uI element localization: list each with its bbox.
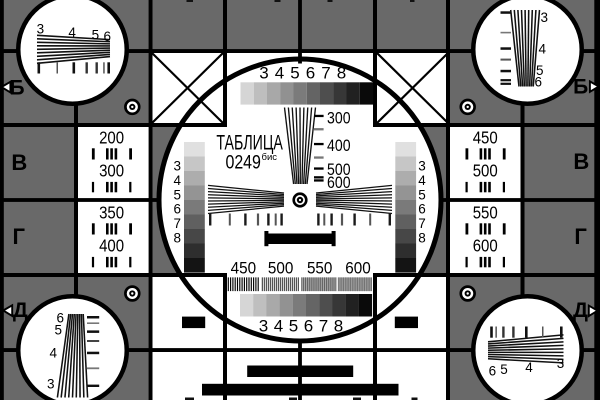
svg-text:450: 450 bbox=[473, 128, 498, 148]
svg-text:300: 300 bbox=[327, 109, 351, 127]
svg-text:4: 4 bbox=[173, 173, 181, 188]
svg-text:В: В bbox=[573, 149, 589, 174]
svg-text:3: 3 bbox=[37, 22, 45, 37]
svg-text:5: 5 bbox=[54, 323, 62, 338]
svg-text:7: 7 bbox=[321, 64, 330, 83]
svg-text:4: 4 bbox=[50, 346, 58, 361]
svg-text:4: 4 bbox=[539, 42, 547, 57]
svg-text:3: 3 bbox=[173, 159, 181, 174]
svg-text:350: 350 bbox=[99, 203, 124, 223]
svg-text:7: 7 bbox=[319, 317, 328, 336]
svg-text:8: 8 bbox=[418, 231, 426, 246]
svg-text:Д: Д bbox=[13, 299, 28, 322]
svg-text:4: 4 bbox=[68, 25, 76, 40]
svg-text:500: 500 bbox=[473, 160, 498, 180]
svg-text:3: 3 bbox=[557, 356, 565, 371]
svg-text:Б: Б bbox=[573, 76, 588, 99]
svg-text:8: 8 bbox=[334, 317, 343, 336]
svg-text:300: 300 bbox=[99, 160, 124, 180]
svg-text:6: 6 bbox=[304, 317, 313, 336]
svg-text:3: 3 bbox=[47, 377, 55, 392]
svg-text:8: 8 bbox=[337, 64, 346, 83]
svg-text:450: 450 bbox=[231, 259, 257, 278]
svg-text:400: 400 bbox=[327, 137, 351, 155]
svg-text:5: 5 bbox=[500, 362, 508, 377]
svg-text:4: 4 bbox=[418, 173, 426, 188]
svg-text:3: 3 bbox=[418, 159, 426, 174]
svg-text:6: 6 bbox=[104, 29, 112, 44]
svg-text:5: 5 bbox=[418, 187, 426, 202]
svg-text:3: 3 bbox=[541, 10, 549, 25]
svg-text:7: 7 bbox=[173, 216, 181, 231]
svg-text:4: 4 bbox=[275, 64, 284, 83]
svg-text:5: 5 bbox=[92, 28, 100, 43]
svg-text:600: 600 bbox=[345, 259, 371, 278]
svg-text:Б: Б bbox=[10, 77, 25, 100]
svg-text:Д: Д bbox=[573, 299, 588, 322]
svg-text:6: 6 bbox=[173, 202, 181, 217]
svg-text:3: 3 bbox=[259, 64, 268, 83]
svg-text:3: 3 bbox=[259, 317, 268, 336]
svg-text:4: 4 bbox=[525, 360, 533, 375]
svg-text:4: 4 bbox=[274, 317, 283, 336]
svg-text:5: 5 bbox=[289, 317, 298, 336]
svg-text:550: 550 bbox=[473, 203, 498, 223]
svg-text:400: 400 bbox=[99, 235, 124, 255]
svg-text:Г: Г bbox=[574, 224, 587, 249]
svg-text:550: 550 bbox=[307, 259, 333, 278]
svg-text:600: 600 bbox=[473, 235, 498, 255]
svg-text:6: 6 bbox=[535, 75, 543, 90]
svg-text:0249: 0249 bbox=[225, 152, 261, 174]
svg-text:6: 6 bbox=[306, 64, 315, 83]
svg-text:бис: бис bbox=[262, 152, 278, 163]
svg-text:8: 8 bbox=[173, 231, 181, 246]
svg-text:6: 6 bbox=[418, 202, 426, 217]
svg-text:5: 5 bbox=[173, 187, 181, 202]
svg-text:200: 200 bbox=[99, 128, 124, 148]
svg-text:7: 7 bbox=[418, 216, 426, 231]
svg-text:500: 500 bbox=[268, 259, 294, 278]
svg-text:Г: Г bbox=[13, 224, 26, 249]
svg-text:6: 6 bbox=[489, 363, 497, 378]
svg-text:5: 5 bbox=[290, 64, 299, 83]
svg-text:В: В bbox=[11, 150, 27, 175]
